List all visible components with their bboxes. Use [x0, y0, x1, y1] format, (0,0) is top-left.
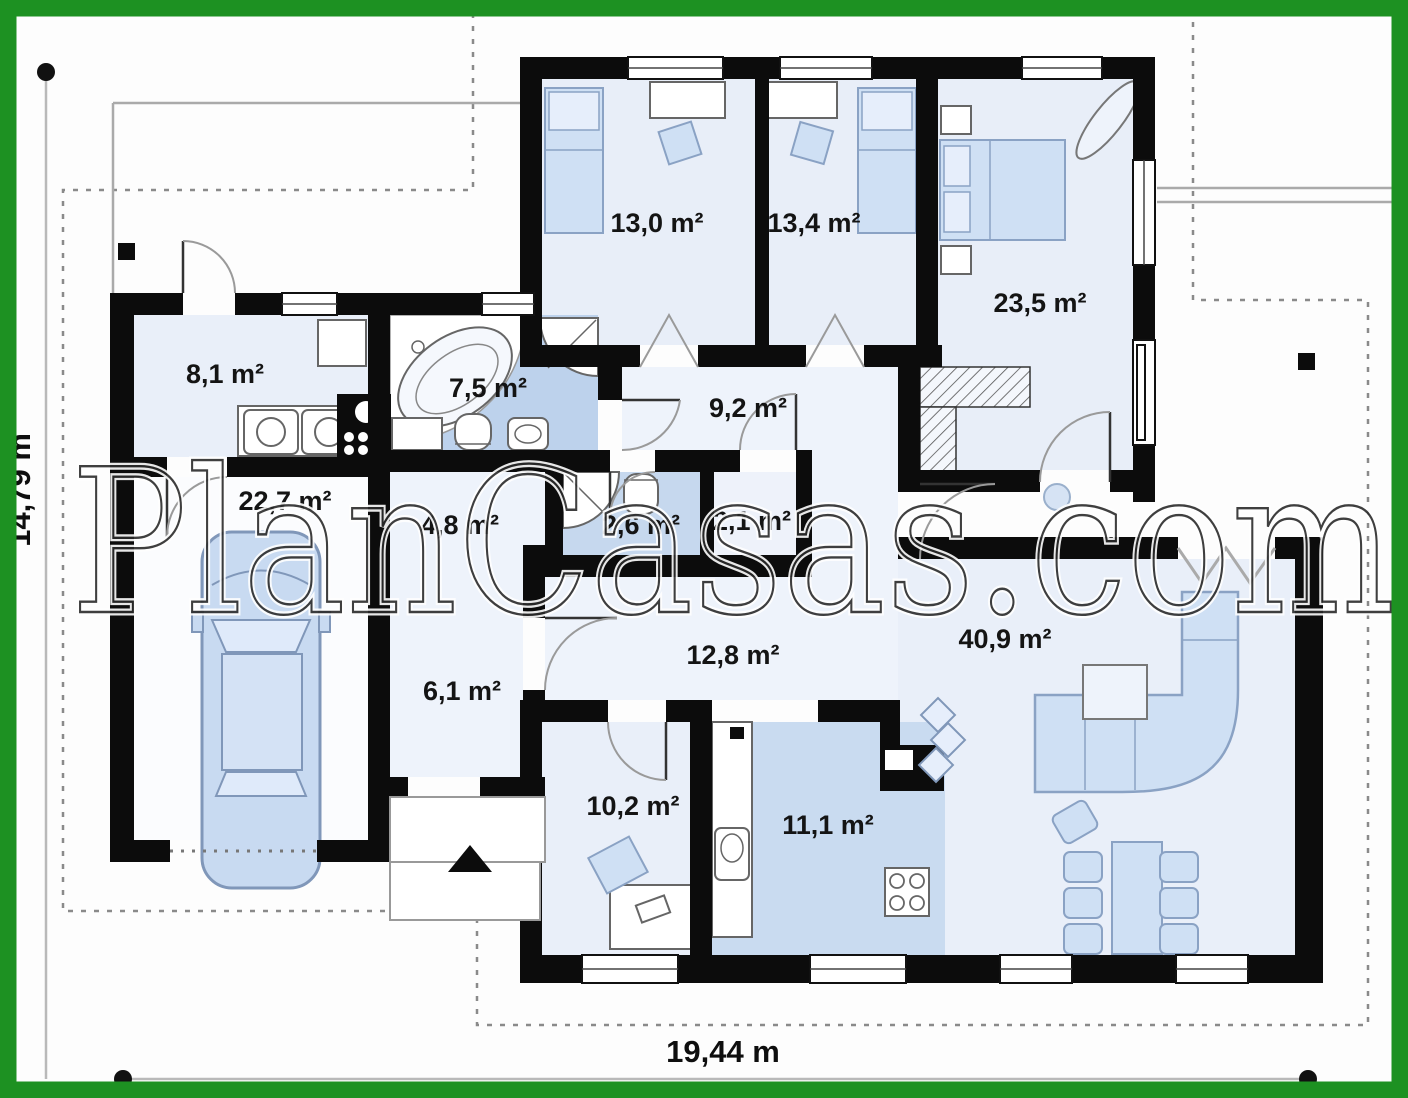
watermark-text: PlanCasas.com [71, 427, 1396, 660]
bed-bedroom2 [858, 88, 916, 233]
dimension-width-label: 19,44 m [666, 1034, 780, 1069]
window-bedroom1 [628, 57, 723, 79]
window-living-2 [1176, 955, 1248, 983]
bed-master [940, 140, 1065, 240]
floor-plan-svg: 13,0 m² 13,4 m² 23,5 m² 8,1 m² 7,5 m² 9,… [0, 0, 1408, 1098]
kitchen-hob-dot [730, 727, 744, 739]
room-label-bathroom: 7,5 m² [449, 373, 527, 403]
room-label-hall-entry: 6,1 m² [423, 676, 501, 706]
window-utility [282, 293, 337, 315]
window-kitchen [810, 955, 906, 983]
coffee-table [1083, 665, 1147, 719]
room-label-office: 10,2 m² [586, 791, 679, 821]
bed-bedroom1 [545, 88, 603, 233]
desk-bedroom1 [650, 82, 725, 118]
room-label-hall-upper: 9,2 m² [709, 393, 787, 423]
room-label-bedroom2: 13,4 m² [767, 208, 860, 238]
window-master-top [1022, 57, 1102, 79]
column-marker-right [1298, 353, 1315, 370]
stove [885, 868, 929, 916]
window-bedroom2 [780, 57, 872, 79]
window-office [582, 955, 678, 983]
watermark: PlanCasas.com PlanCasas.com [71, 427, 1396, 660]
entrance-porch [390, 797, 545, 920]
window-bathroom [482, 293, 534, 315]
column-marker-left [118, 243, 135, 260]
kitchen-sink [715, 828, 749, 880]
door-utility-side [183, 241, 235, 293]
desk-bedroom2 [762, 82, 837, 118]
nightstand-top [941, 106, 971, 134]
room-label-master-bedroom: 23,5 m² [993, 288, 1086, 318]
room-label-utility: 8,1 m² [186, 359, 264, 389]
window-living-1 [1000, 955, 1072, 983]
room-label-bedroom1: 13,0 m² [610, 208, 703, 238]
floor-plan-image: 13,0 m² 13,4 m² 23,5 m² 8,1 m² 7,5 m² 9,… [0, 0, 1408, 1098]
window-master-right [1133, 160, 1155, 265]
nightstand-bottom [941, 246, 971, 274]
utility-cabinet [318, 320, 366, 366]
room-label-kitchen: 11,1 m² [782, 810, 874, 840]
